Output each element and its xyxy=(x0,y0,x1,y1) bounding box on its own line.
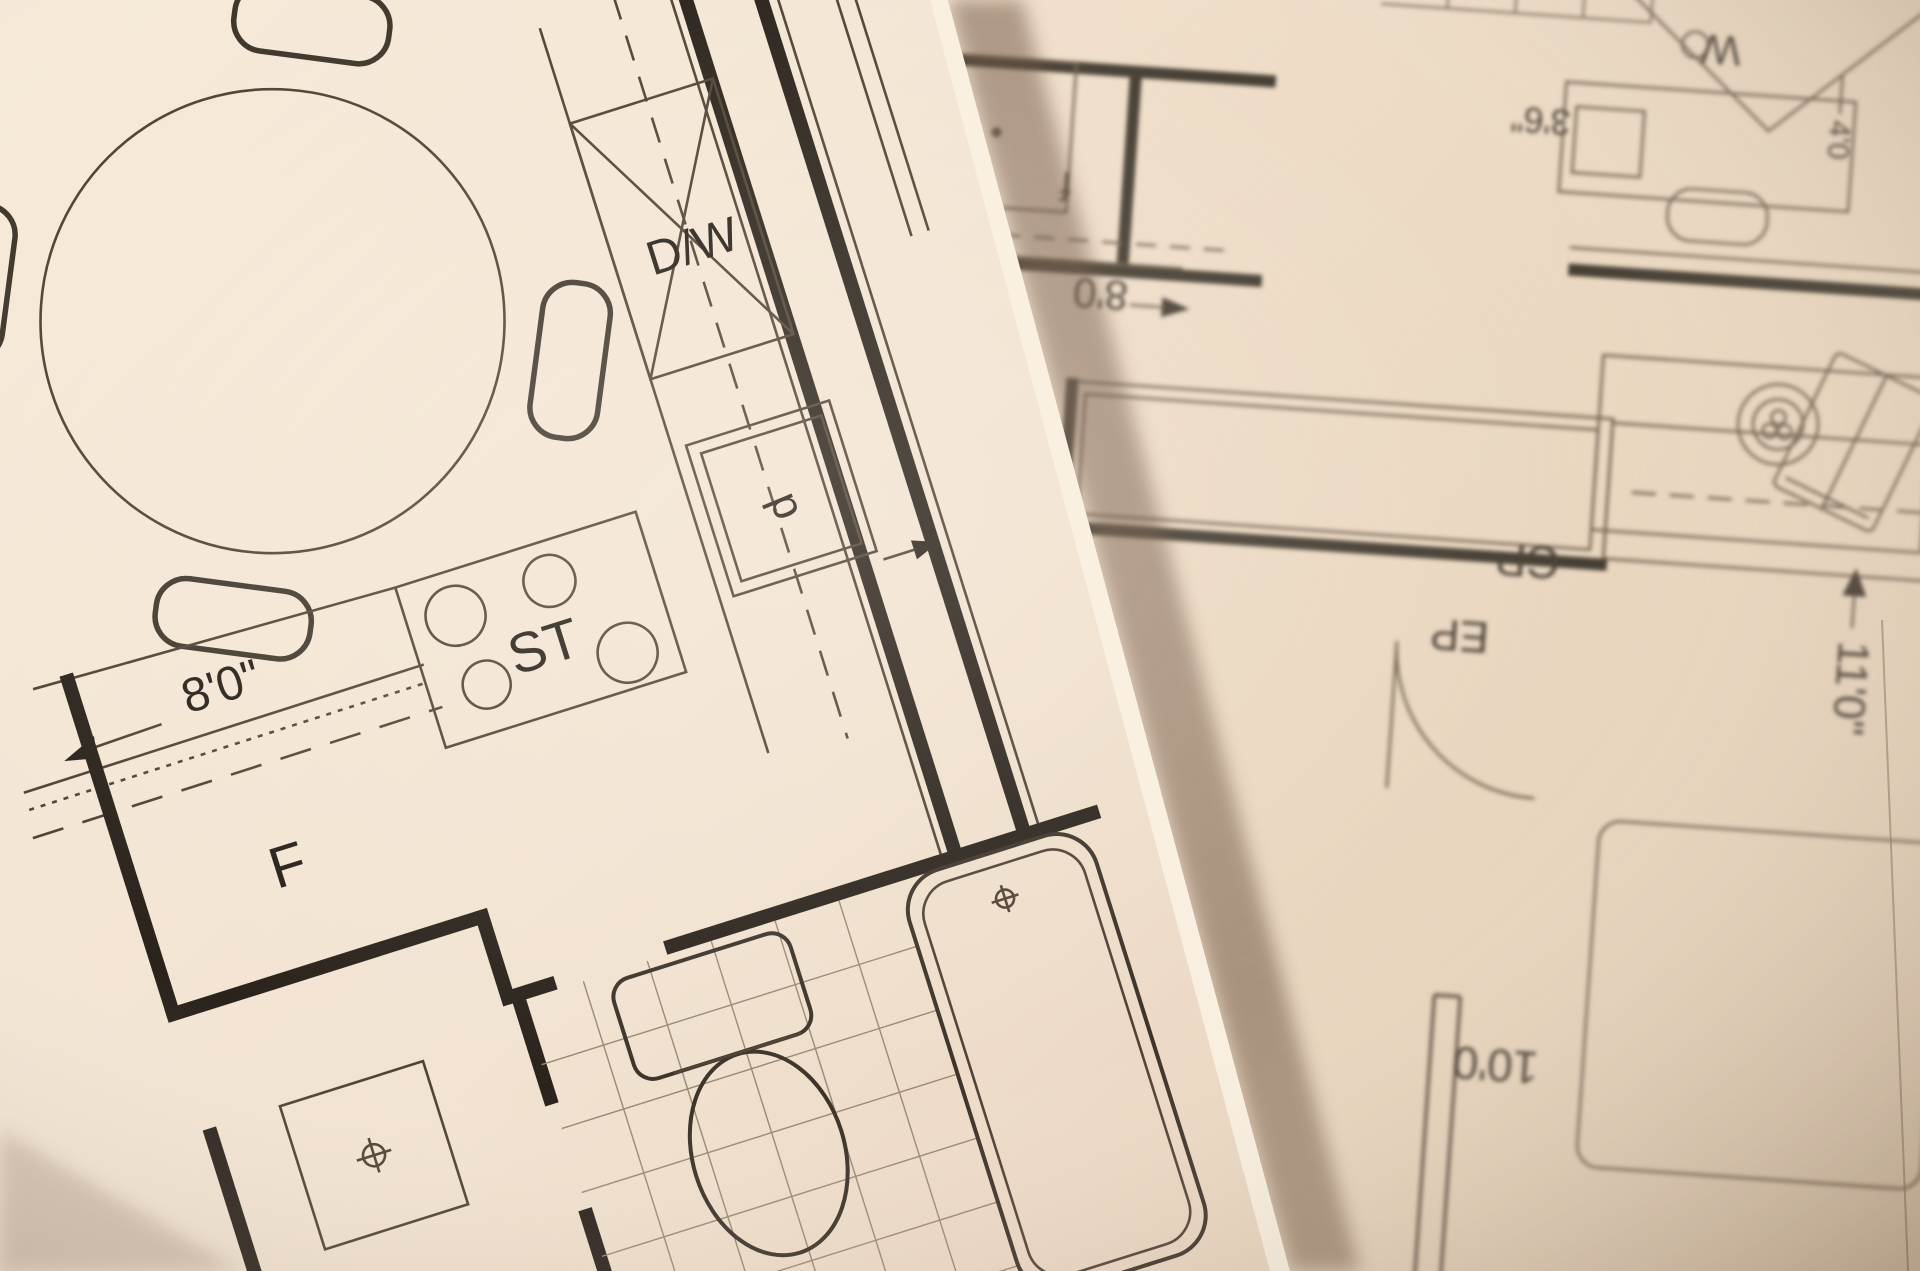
vignette xyxy=(0,0,1920,1271)
blueprint-photo: CP EP 11'0" 10'0 xyxy=(0,0,1920,1271)
floorplan-scene: CP EP 11'0" 10'0 xyxy=(0,0,1920,1271)
